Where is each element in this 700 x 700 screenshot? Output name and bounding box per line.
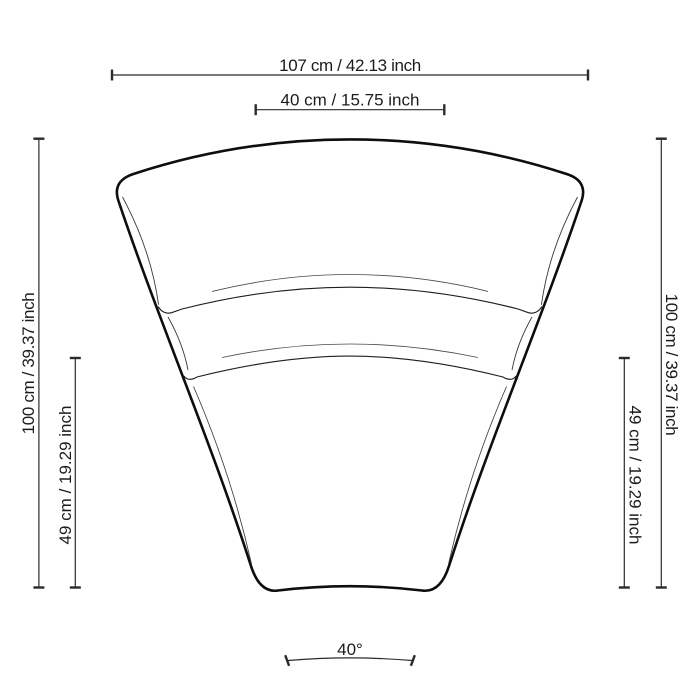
svg-text:40 cm / 15.75 inch: 40 cm / 15.75 inch (281, 91, 420, 110)
svg-text:49 cm / 19.29 inch: 49 cm / 19.29 inch (626, 406, 645, 545)
svg-text:49 cm / 19.29 inch: 49 cm / 19.29 inch (56, 406, 75, 545)
svg-text:40°: 40° (337, 640, 363, 659)
svg-text:107 cm / 42.13 inch: 107 cm / 42.13 inch (279, 56, 421, 75)
svg-text:100 cm / 39.37 inch: 100 cm / 39.37 inch (662, 294, 681, 436)
svg-text:100 cm / 39.37 inch: 100 cm / 39.37 inch (19, 293, 38, 435)
